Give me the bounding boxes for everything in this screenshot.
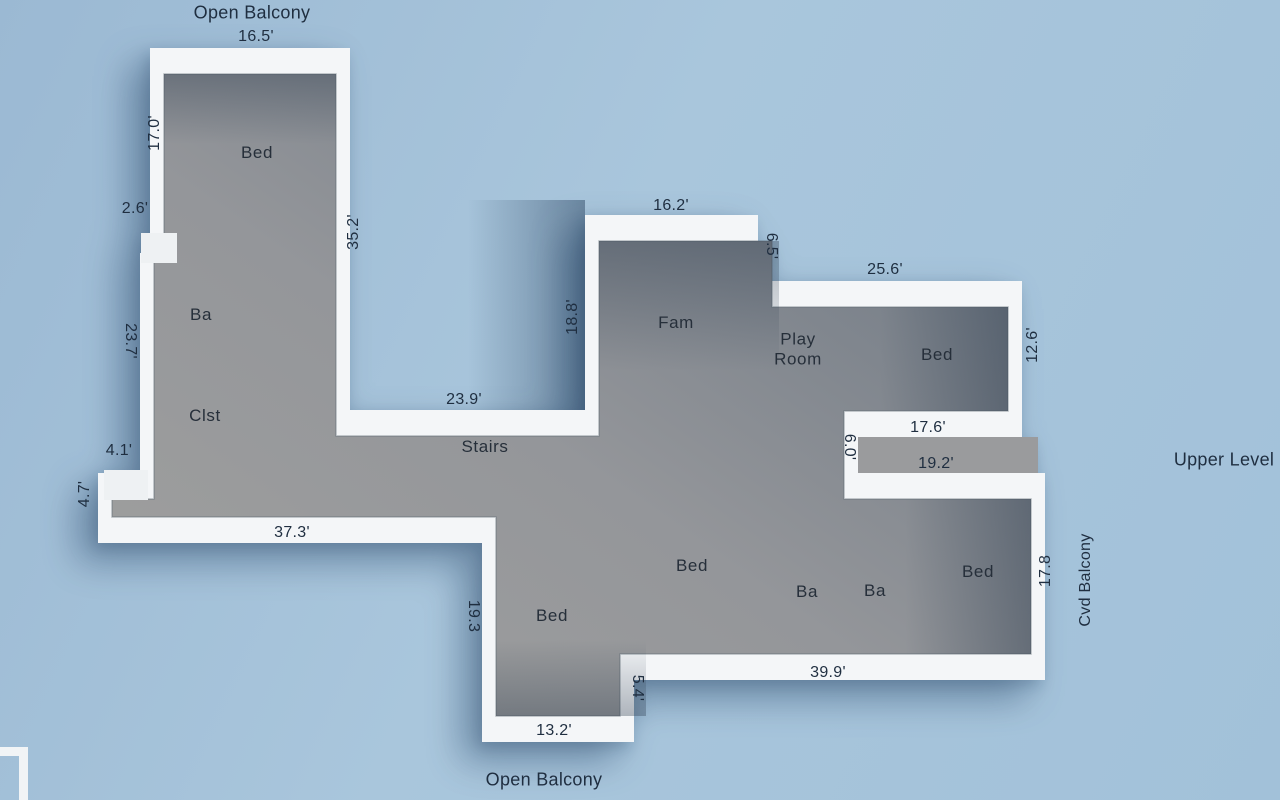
dim-25-6: 25.6' xyxy=(867,261,903,279)
dim-5-4: 5.4' xyxy=(628,675,646,702)
dim-23-9: 23.9' xyxy=(446,391,482,409)
room-bed-sw: Bed xyxy=(536,606,568,626)
shade-fam xyxy=(599,241,779,371)
dim-16-5: 16.5' xyxy=(238,28,274,46)
room-bed-s-mid: Bed xyxy=(676,556,708,576)
room-bed-nw: Bed xyxy=(241,143,273,163)
dim-17-6: 17.6' xyxy=(910,419,946,437)
dim-17-8: 17.8 xyxy=(1037,555,1055,587)
cvd-balcony-label: Cvd Balcony xyxy=(1077,533,1095,626)
adjacent-structure-corner xyxy=(0,747,28,800)
dim-19-2: 19.2' xyxy=(918,455,954,473)
dim-12-6: 12.6' xyxy=(1024,327,1042,363)
floorplan-scene: Open Balcony Open Balcony Cvd Balcony Up… xyxy=(0,0,1280,800)
room-bed-se: Bed xyxy=(962,562,994,582)
dim-17-0: 17.0' xyxy=(146,115,164,151)
dim-37-3: 37.3' xyxy=(274,524,310,542)
upper-level-label: Upper Level xyxy=(1174,450,1274,471)
dim-23-7: 23.7' xyxy=(121,323,139,359)
dim-4-1: 4.1' xyxy=(106,442,133,460)
room-stairs: Stairs xyxy=(461,437,508,457)
room-play-room: Play Room xyxy=(762,329,834,368)
room-clst: Clst xyxy=(189,406,221,426)
dim-35-2: 35.2' xyxy=(345,214,363,250)
room-fam: Fam xyxy=(658,313,694,333)
dim-6-0: 6.0' xyxy=(840,434,858,461)
shade-bed-sw xyxy=(496,640,646,716)
room-ba-w: Ba xyxy=(190,305,212,325)
room-ba-s1: Ba xyxy=(796,582,818,602)
dim-18-8: 18.8' xyxy=(564,299,582,335)
dim-4-7: 4.7' xyxy=(76,481,94,508)
dim-2-6: 2.6' xyxy=(122,200,149,218)
dim-39-9: 39.9' xyxy=(810,664,846,682)
wall-step-post-lower xyxy=(104,470,148,500)
wall-step-post-upper xyxy=(141,233,177,263)
dim-13-2: 13.2' xyxy=(536,722,572,740)
room-bed-ne: Bed xyxy=(921,345,953,365)
open-balcony-top-label: Open Balcony xyxy=(194,3,311,24)
dim-6-5: 6.5' xyxy=(762,233,780,260)
dim-16-2: 16.2' xyxy=(653,197,689,215)
shade-bed-nw xyxy=(164,74,336,144)
open-balcony-bottom-label: Open Balcony xyxy=(486,770,603,791)
room-ba-s2: Ba xyxy=(864,581,886,601)
dim-19-3: 19.3 xyxy=(464,600,482,632)
